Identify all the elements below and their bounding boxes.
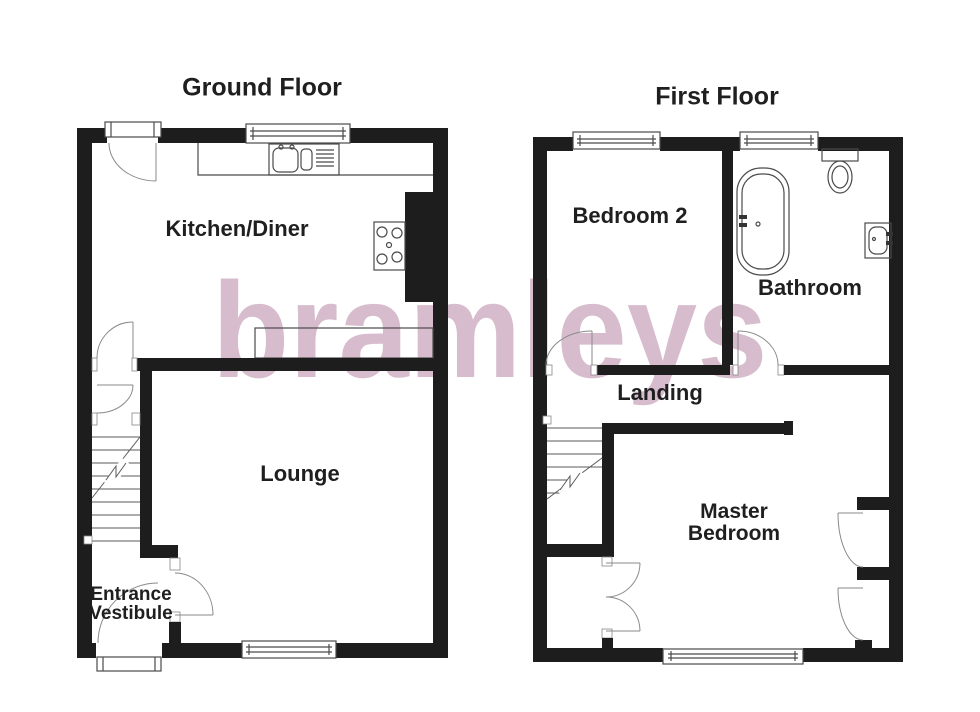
- kitchen-window: [246, 124, 350, 143]
- bedroom2-window: [573, 132, 660, 149]
- ff-top-wall: [533, 137, 573, 151]
- master-top-wall: [605, 423, 793, 434]
- bathroom-door-arc: [738, 331, 778, 365]
- lounge-window: [242, 641, 336, 658]
- newel-post: [84, 536, 92, 544]
- ff-divider-wall: [722, 151, 733, 365]
- hob-icon: [374, 222, 405, 270]
- cupboard-doors: [602, 557, 640, 648]
- landing-wall: [597, 365, 730, 375]
- gf-left-wall: [77, 128, 92, 658]
- gf-top-wall: [158, 128, 246, 143]
- bathtub-icon: [737, 168, 789, 275]
- floorplan-drawing: [0, 0, 980, 712]
- gf-staircase: [84, 430, 152, 545]
- floorplan-page: bramleys: [0, 0, 980, 712]
- ff-left-wall: [533, 137, 547, 662]
- kitchen-bench: [255, 328, 433, 358]
- gf-bottom-wall: [77, 643, 96, 658]
- front-door-arc: [98, 583, 158, 643]
- gf-bottom-wall: [162, 643, 242, 658]
- ff-right-wall: [889, 137, 903, 662]
- kitchen-door-arc: [97, 322, 133, 358]
- hall-door-arc: [97, 385, 133, 413]
- front-door-frame: [97, 657, 161, 671]
- first-floor-plan: [533, 132, 903, 664]
- ff-bottom-wall: [803, 648, 903, 662]
- back-door-arc: [109, 143, 156, 181]
- lounge-door-arc: [175, 573, 213, 615]
- toilet-icon: [822, 149, 858, 193]
- bathroom-window: [740, 132, 818, 149]
- landing-wall: [784, 365, 889, 375]
- gf-top-wall: [77, 128, 107, 143]
- gf-right-wall: [433, 128, 448, 658]
- ff-bottom-wall: [533, 648, 663, 662]
- wardrobe-doors: [838, 497, 889, 649]
- back-door-frame: [105, 122, 161, 137]
- gf-divider-wall: [137, 358, 433, 371]
- master-window: [663, 649, 803, 664]
- ff-top-wall: [660, 137, 740, 151]
- basin-icon: [865, 223, 893, 258]
- newel-post: [543, 416, 551, 424]
- bedroom2-door-arc: [546, 331, 592, 365]
- gf-bottom-wall: [336, 643, 448, 658]
- kitchen-counter: [198, 143, 433, 175]
- gf-chimney-breast: [405, 192, 433, 302]
- ground-floor-plan: [77, 122, 448, 671]
- kitchen-sink-icon: [269, 144, 339, 175]
